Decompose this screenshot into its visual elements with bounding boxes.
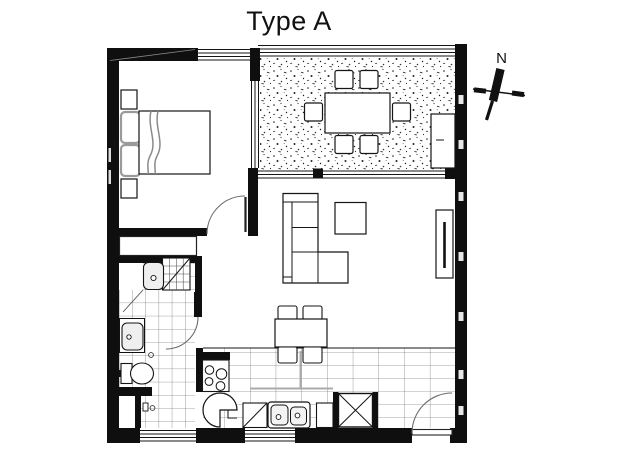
dining-chair-2: [303, 306, 322, 320]
tv-unit: [436, 210, 453, 278]
dining-chair-1: [278, 306, 297, 320]
window-bathroom-bottom: [140, 431, 196, 442]
base-cabinet: [317, 403, 334, 428]
wall-bottom-1: [107, 428, 140, 443]
north-label: N: [496, 50, 507, 67]
toilet: [118, 363, 154, 384]
wall-bedroom-bottom: [107, 228, 207, 236]
shower: [163, 258, 191, 290]
headboard-cushion-2: [121, 145, 140, 176]
balcony-chair-5: [335, 136, 353, 154]
coffee-table: [335, 203, 366, 235]
nightstand-top: [121, 90, 137, 109]
living-room: [275, 194, 453, 364]
wash-basin: [144, 263, 164, 290]
wardrobe: [120, 237, 197, 256]
balcony-chair-3: [305, 103, 323, 121]
wall-kitchen-nib: [196, 352, 230, 360]
wall-bottom-2: [196, 428, 245, 443]
planter-bench: [431, 114, 455, 168]
north-arrow-icon: N: [473, 50, 525, 120]
wall-toilet-jog: [107, 387, 152, 396]
cupboard-recess: [119, 396, 135, 428]
floor-plan-page: Type A: [0, 0, 623, 460]
fridge-cross-unit: [333, 392, 378, 428]
outdoor-dining-table: [325, 93, 390, 133]
dining-chair-3: [278, 347, 297, 363]
dining-chair-4: [303, 347, 322, 363]
balcony-chair-1: [335, 71, 353, 89]
wall-cupboard-partition: [135, 396, 141, 428]
balcony-chair-6: [360, 136, 378, 154]
floor-plan-canvas: Type A: [0, 0, 623, 460]
page-title: Type A: [246, 6, 332, 36]
wall-bathroom-right-upper: [195, 256, 202, 292]
vanity-basin: [120, 319, 145, 353]
dining-table: [275, 319, 327, 347]
dishwasher: [243, 403, 267, 428]
window-kitchen-bottom: [245, 431, 295, 442]
bedroom-door: [207, 196, 246, 234]
wall-bottom-3: [295, 428, 412, 443]
cooktop: [203, 360, 230, 392]
wall-bedroom-living: [248, 168, 258, 236]
balcony-chair-4: [393, 103, 411, 121]
window-bedroom-top: [197, 48, 250, 61]
headboard-cushion-1: [121, 112, 140, 143]
balcony-railing: [258, 46, 455, 57]
nightstand-bottom: [121, 179, 137, 198]
wall-left: [107, 48, 119, 443]
door-stop: [143, 403, 148, 411]
window-bedroom-balcony: [252, 81, 259, 168]
double-sink: [268, 402, 310, 428]
balcony-chair-2: [360, 71, 378, 89]
